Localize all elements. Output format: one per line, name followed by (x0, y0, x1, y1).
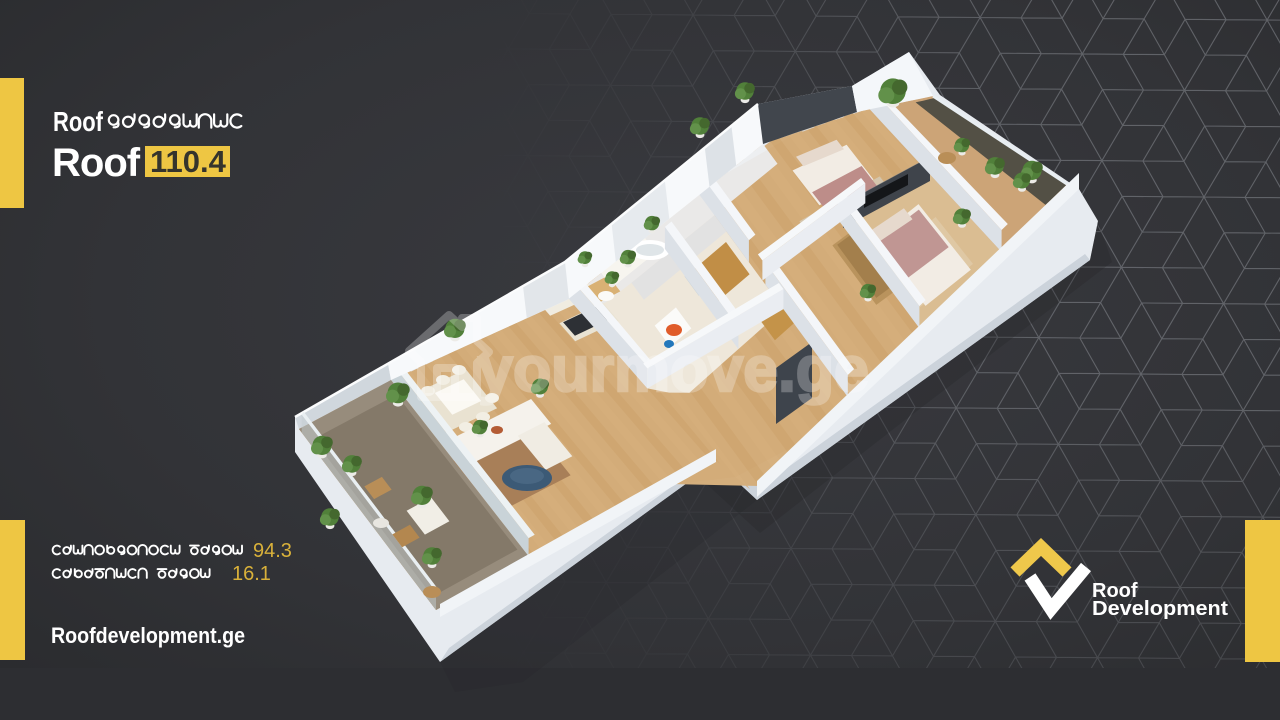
svg-text:Roof: Roof (52, 141, 141, 185)
svg-text:Roof: Roof (53, 106, 104, 137)
svg-text:Roofdevelopment.ge: Roofdevelopment.ge (51, 623, 245, 648)
svg-text:16.1: 16.1 (232, 563, 271, 585)
svg-text:yourmove.ge: yourmove.ge (478, 333, 869, 405)
svg-text:Development: Development (1092, 598, 1228, 620)
svg-text:94.3: 94.3 (253, 540, 292, 562)
svg-text:110.4: 110.4 (150, 144, 227, 179)
